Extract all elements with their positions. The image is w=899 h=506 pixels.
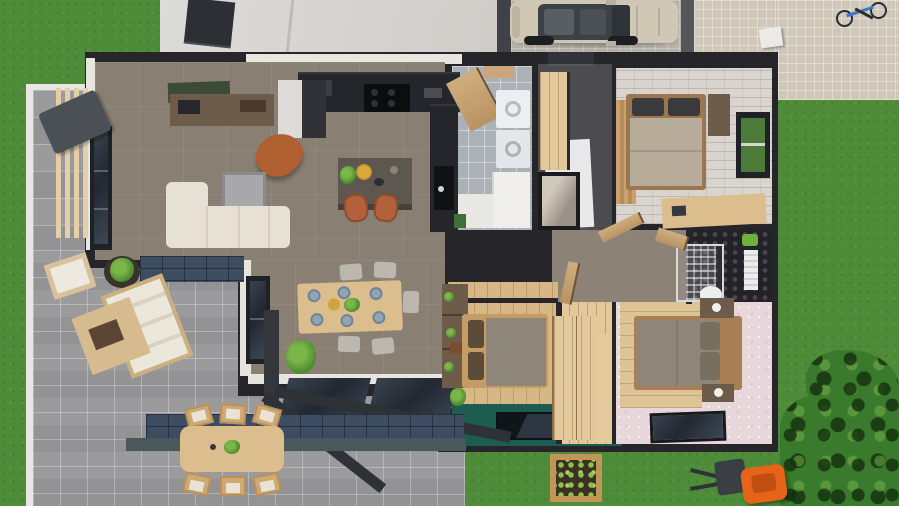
dining-chair xyxy=(403,291,420,314)
bedroom1-window xyxy=(736,112,770,178)
duvet-fold xyxy=(630,150,702,152)
bicycle xyxy=(834,0,892,30)
chair-cushion xyxy=(191,409,207,422)
window-mullion xyxy=(94,170,108,172)
chair-cushion xyxy=(226,409,241,420)
dinner-plate xyxy=(307,289,320,302)
bed1-duvet xyxy=(630,118,702,186)
car-tailgate xyxy=(512,6,520,38)
table-plant xyxy=(224,440,240,454)
mirror-cabinet xyxy=(538,172,580,230)
tree-canopy xyxy=(780,396,899,506)
herb-pot xyxy=(340,166,356,184)
car-mirror xyxy=(606,41,616,46)
centerpiece-plant xyxy=(344,298,360,313)
bowl xyxy=(374,178,384,186)
tv-console xyxy=(170,94,274,126)
tall-cabinet xyxy=(278,80,302,138)
fridge xyxy=(302,80,326,138)
mower-deck xyxy=(751,472,777,493)
dining-chair xyxy=(338,336,361,353)
car-hood-seam xyxy=(636,6,638,38)
dryer-door xyxy=(505,141,521,157)
car-windshield xyxy=(612,5,630,39)
dinner-plate xyxy=(369,287,382,300)
sofa-seam xyxy=(268,206,270,248)
patio-chair xyxy=(219,403,246,425)
pergola-header-beam xyxy=(126,438,466,451)
bedroom1-desk xyxy=(661,193,766,228)
car-hood-seam xyxy=(658,8,660,36)
window-glass xyxy=(94,132,108,244)
burner xyxy=(388,100,395,107)
bathroom-plant xyxy=(742,234,758,246)
bed3-pillow xyxy=(700,352,720,380)
dinner-plate xyxy=(310,313,323,326)
dining-chair xyxy=(339,263,362,280)
patio-plant xyxy=(110,258,134,282)
dinner-plate xyxy=(372,311,385,324)
bed2-pillow xyxy=(468,352,484,380)
car-mirror xyxy=(606,0,616,5)
burner xyxy=(371,89,378,96)
duvet-fold xyxy=(676,320,678,386)
sofa-seam xyxy=(238,206,240,248)
shelf-plant xyxy=(444,292,454,302)
bedroom3-window xyxy=(649,411,726,444)
burner xyxy=(371,100,378,107)
chair-cushion xyxy=(259,409,275,422)
console-deco xyxy=(178,100,200,114)
table-item xyxy=(210,444,216,450)
utility-shelf xyxy=(484,66,514,78)
bed3-pillow xyxy=(700,322,720,350)
window-mullion xyxy=(94,208,108,210)
car-sunroof xyxy=(580,9,606,35)
washer-door xyxy=(505,101,521,117)
cooktop xyxy=(364,84,410,112)
sofa-long xyxy=(166,206,290,248)
console-deco xyxy=(240,100,266,112)
bed1-pillow xyxy=(632,98,664,116)
counter-items xyxy=(424,88,442,98)
floorplan-scene xyxy=(0,0,899,506)
towel-radiator xyxy=(744,250,758,290)
front-door xyxy=(548,52,594,66)
dinner-plate xyxy=(340,314,353,327)
lamp xyxy=(714,388,723,397)
car-sunroof xyxy=(544,9,574,35)
sofa-seam xyxy=(206,206,208,248)
fruit-plate xyxy=(356,164,372,180)
bed1-pillow xyxy=(668,98,700,116)
bed1-side-shelf xyxy=(708,94,730,136)
shelf-plant xyxy=(446,328,456,338)
coffee-table xyxy=(222,172,266,210)
car-wheel xyxy=(524,36,554,45)
shelf-plant xyxy=(444,362,454,372)
bed2-duvet xyxy=(486,318,546,386)
nightstand xyxy=(700,298,734,318)
chair-cushion xyxy=(189,480,205,493)
lounge-cushion xyxy=(50,258,90,293)
wardrobe-seam xyxy=(576,316,577,440)
serving-tray xyxy=(88,319,124,350)
chair-cushion xyxy=(226,483,240,493)
dining-chair xyxy=(371,337,395,355)
suv-car xyxy=(508,0,680,46)
nightstand xyxy=(702,384,734,402)
mower-body xyxy=(740,463,789,505)
white-bench xyxy=(759,27,783,49)
lawn-mower xyxy=(690,458,790,506)
burner xyxy=(388,89,395,96)
living-window xyxy=(90,126,112,250)
roof-skylight xyxy=(184,0,236,48)
window-mullion xyxy=(741,143,765,146)
entry-wardrobe xyxy=(540,72,570,170)
faucet xyxy=(438,186,444,192)
laundry-bin xyxy=(454,214,466,228)
deco xyxy=(390,166,398,174)
chair-cushion xyxy=(260,480,276,493)
utility-cabinet xyxy=(492,172,530,228)
desk-item xyxy=(672,205,687,216)
bedroom2-wardrobe xyxy=(552,316,598,440)
serving-dish xyxy=(328,298,340,310)
patio-chair xyxy=(220,476,246,496)
lamp xyxy=(712,303,721,312)
wardrobe-panel xyxy=(596,334,612,442)
kitchen-sink xyxy=(434,166,454,210)
dining-chair xyxy=(374,261,397,278)
dryer xyxy=(496,130,530,168)
bed2-pillow xyxy=(468,320,484,348)
wall xyxy=(612,302,616,444)
raised-planter-box xyxy=(550,454,602,502)
outdoor-dining-table xyxy=(180,426,284,472)
dining-table xyxy=(297,280,403,334)
washing-machine xyxy=(496,90,530,128)
